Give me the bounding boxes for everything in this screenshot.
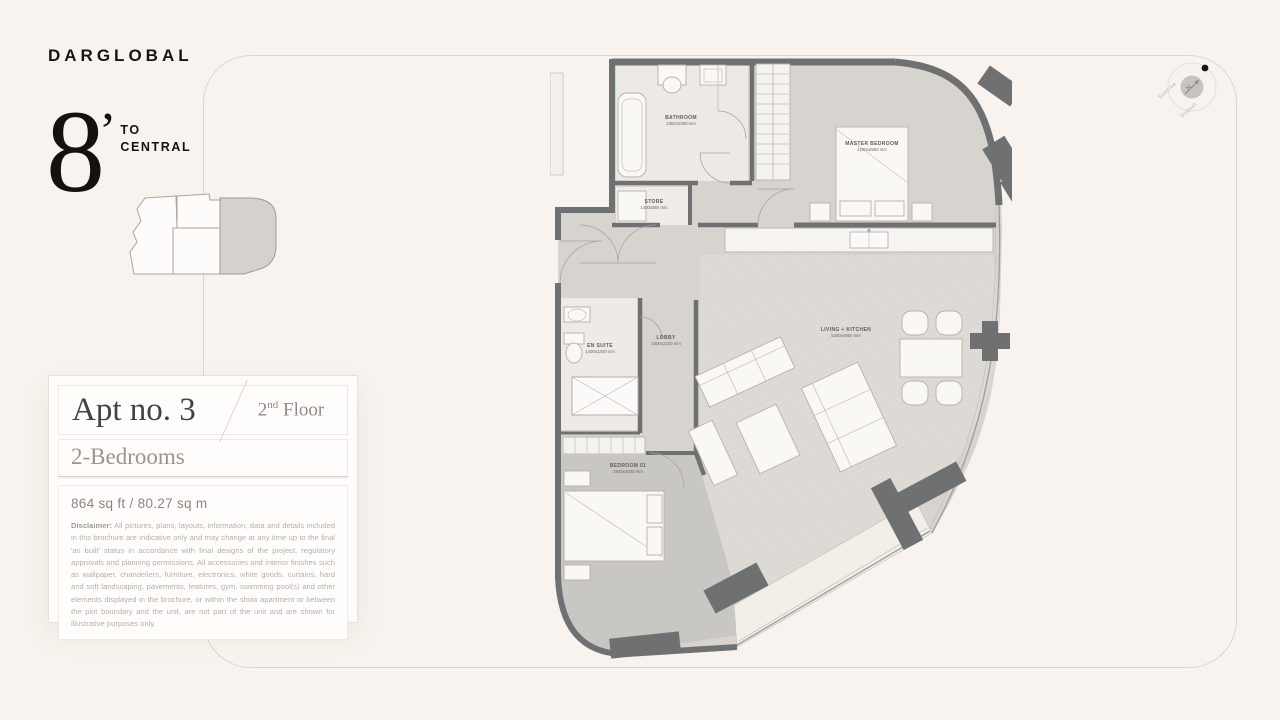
key-plan-unit-left xyxy=(130,196,177,274)
floor-plan: BATHROOM 2300x2090 mm STORE 1400x850 mm … xyxy=(550,55,1012,667)
disclaimer-text: All pictures, plans, layouts, informatio… xyxy=(71,521,335,628)
project-logo-apostrophe: ’ xyxy=(99,102,116,161)
pillow xyxy=(647,495,662,523)
floor-suffix: nd xyxy=(267,399,278,411)
dining-table xyxy=(900,339,962,377)
dining-chair xyxy=(936,381,962,405)
master-wardrobe xyxy=(756,64,790,180)
key-plan-unit-highlighted xyxy=(220,198,276,274)
key-plan-unit-top xyxy=(177,194,225,228)
svg-text:1000x2230 mm: 1000x2230 mm xyxy=(651,341,681,346)
dining-chair xyxy=(902,311,928,335)
apartment-title: Apt no. 3 xyxy=(59,392,235,429)
unit-info-card: Apt no. 3 2nd Floor 2-Bedrooms 864 sq ft… xyxy=(48,375,358,623)
key-plan-unit-bottom xyxy=(173,228,225,274)
nightstand xyxy=(564,565,590,580)
floor-number: 2 xyxy=(258,399,268,420)
bedroom-wardrobe xyxy=(563,437,645,454)
bedrooms-label: 2-Bedrooms xyxy=(58,439,348,477)
compass: N Sunrise Sunset xyxy=(1156,52,1240,136)
disclaimer-label: Disclaimer: xyxy=(71,521,112,530)
ensuite-toilet xyxy=(566,343,582,363)
nightstand xyxy=(564,471,590,486)
darglobal-logo: DARGLOBAL xyxy=(48,46,193,66)
floor-word: Floor xyxy=(278,399,324,420)
dining-chair xyxy=(902,381,928,405)
nightstand xyxy=(912,203,932,221)
project-logo-word2: CENTRAL xyxy=(120,140,191,154)
svg-text:4180x2950 mm: 4180x2950 mm xyxy=(857,147,887,152)
kitchen-counter xyxy=(725,228,993,252)
sun-dot-icon xyxy=(1202,65,1209,72)
unit-card-header: Apt no. 3 2nd Floor xyxy=(58,385,348,435)
area-box: 864 sq ft / 80.27 sq m Disclaimer: All p… xyxy=(58,485,348,640)
svg-text:1400x2200 mm: 1400x2200 mm xyxy=(585,349,615,354)
dining-chair xyxy=(936,311,962,335)
project-logo-words: TO CENTRAL xyxy=(120,122,191,156)
unit-area: 864 sq ft / 80.27 sq m xyxy=(71,496,335,511)
key-plan xyxy=(125,190,281,282)
sunrise-label: Sunrise xyxy=(1157,81,1178,100)
shaft-box xyxy=(550,73,563,175)
project-logo-word1: TO xyxy=(120,123,140,137)
pillow xyxy=(647,527,662,555)
project-logo-numeral: 8 xyxy=(46,96,105,208)
svg-text:1400x850 mm: 1400x850 mm xyxy=(640,205,668,210)
disclaimer: Disclaimer: All pictures, plans, layouts… xyxy=(71,520,335,631)
svg-text:2300x2090 mm: 2300x2090 mm xyxy=(666,121,696,126)
floor-badge: 2nd Floor xyxy=(235,386,347,434)
svg-text:2920x4000 mm: 2920x4000 mm xyxy=(613,469,643,474)
svg-text:5200x4960 mm: 5200x4960 mm xyxy=(831,333,861,338)
pillow xyxy=(875,201,904,216)
nightstand xyxy=(810,203,830,221)
pillow xyxy=(840,201,871,216)
